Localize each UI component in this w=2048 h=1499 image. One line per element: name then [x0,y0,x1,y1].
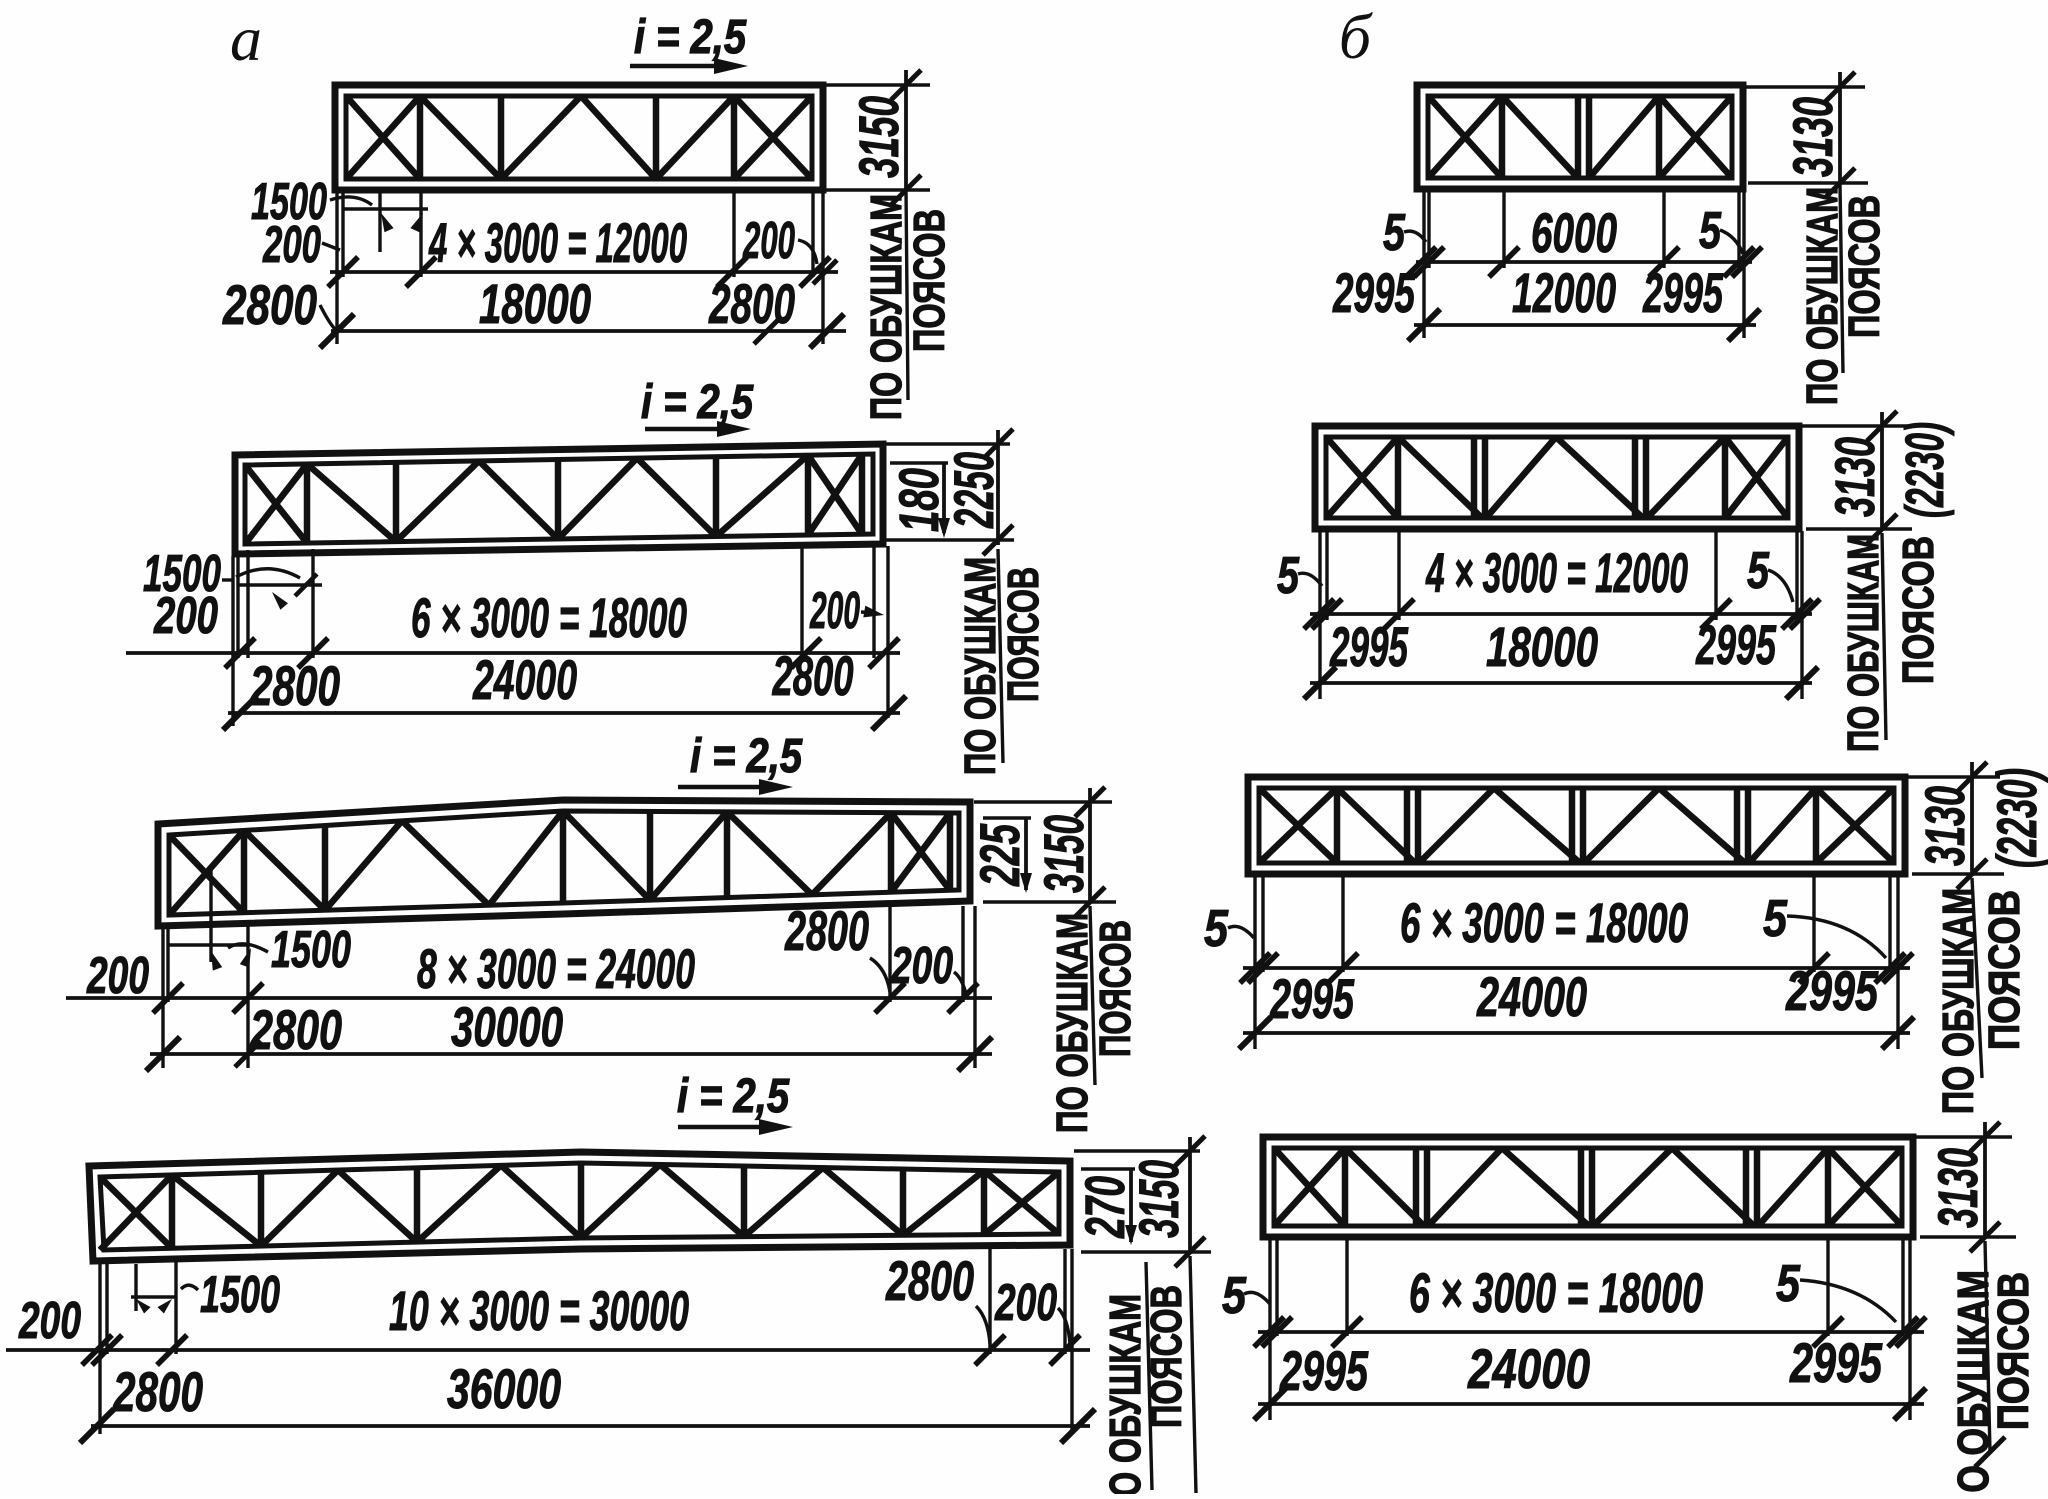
svg-text:(2230): (2230) [1985,768,2048,868]
svg-text:2800: 2800 [249,998,342,1061]
svg-text:2995: 2995 [1642,261,1723,324]
svg-text:ПОЯСОВ: ПОЯСОВ [999,567,1048,702]
svg-text:24000: 24000 [472,648,577,711]
svg-text:i = 2,5: i = 2,5 [641,376,754,429]
svg-text:3150: 3150 [847,96,910,178]
svg-text:6 × 3000 = 18000: 6 × 3000 = 18000 [1400,891,1688,954]
svg-text:ПОЯСОВ: ПОЯСОВ [1091,920,1140,1057]
svg-text:ПОЯСОВ: ПОЯСОВ [1989,1272,2038,1430]
svg-text:2250: 2250 [942,452,1005,529]
svg-text:6000: 6000 [1531,201,1617,264]
svg-text:200: 200 [890,937,953,995]
svg-text:3150: 3150 [1032,815,1095,893]
svg-text:5: 5 [1699,202,1722,260]
svg-text:4 × 3000 = 12000: 4 × 3000 = 12000 [428,211,687,274]
svg-text:24000: 24000 [1467,1337,1590,1400]
svg-text:1500: 1500 [200,1266,280,1324]
svg-text:i = 2,5: i = 2,5 [677,1070,790,1123]
svg-text:36000: 36000 [447,1357,561,1420]
svg-text:3130: 3130 [1781,97,1844,177]
svg-text:3130: 3130 [1913,786,1976,866]
svg-text:6 × 3000 = 18000: 6 × 3000 = 18000 [411,586,687,649]
svg-text:2800: 2800 [885,1249,974,1312]
svg-text:ПО ОБУШКАМ: ПО ОБУШКАМ [862,194,911,420]
svg-text:ПОЯСОВ: ПОЯСОВ [1840,195,1889,338]
svg-text:3150: 3150 [1127,1160,1190,1238]
svg-text:18000: 18000 [479,272,591,335]
svg-text:2995: 2995 [1329,615,1408,678]
svg-text:200: 200 [742,212,795,270]
svg-text:30000: 30000 [451,995,563,1058]
svg-text:2995: 2995 [1785,959,1878,1022]
svg-text:2800: 2800 [249,654,340,717]
svg-text:12000: 12000 [1512,261,1616,324]
svg-text:180: 180 [887,468,950,532]
svg-text:ПО ОБУШКАМ: ПО ОБУШКАМ [1839,534,1888,752]
svg-text:ПО ОБУШКАМ: ПО ОБУШКАМ [1048,913,1097,1133]
svg-text:8 × 3000 = 24000: 8 × 3000 = 24000 [417,937,695,1000]
svg-text:б: б [1339,1,1373,72]
svg-text:4 × 3000 = 12000: 4 × 3000 = 12000 [1425,541,1688,604]
svg-text:2995: 2995 [1695,613,1776,676]
svg-text:10 × 3000 = 30000: 10 × 3000 = 30000 [389,1279,689,1342]
svg-text:2995: 2995 [1789,1331,1882,1394]
svg-text:5: 5 [1747,542,1770,600]
svg-text:6 × 3000 = 18000: 6 × 3000 = 18000 [1409,1261,1703,1324]
svg-text:225: 225 [968,823,1031,886]
svg-text:ПО ОБУШКАМ: ПО ОБУШКАМ [956,557,1005,775]
svg-text:1500: 1500 [271,921,351,979]
svg-text:2995: 2995 [1269,967,1354,1030]
svg-text:ПОЯСОВ: ПОЯСОВ [1980,890,2029,1050]
svg-text:(2230): (2230) [1895,422,1955,518]
svg-text:ПОЯСОВ: ПОЯСОВ [905,209,954,352]
svg-text:5: 5 [1776,1255,1801,1313]
svg-text:200: 200 [262,216,321,274]
svg-text:3130: 3130 [1926,1148,1989,1228]
svg-text:200: 200 [18,1292,81,1350]
svg-text:а: а [230,3,262,74]
svg-text:200: 200 [153,587,218,645]
svg-text:5: 5 [1222,1267,1247,1325]
svg-text:5: 5 [1383,204,1406,262]
svg-text:2800: 2800 [112,1360,203,1423]
svg-text:200: 200 [994,1274,1057,1332]
svg-text:5: 5 [1277,547,1300,605]
svg-text:2800: 2800 [772,644,854,707]
svg-text:5: 5 [1204,900,1229,958]
svg-text:2995: 2995 [1332,261,1415,324]
svg-text:ПО ОБУШКАМ: ПО ОБУШКАМ [1934,888,1983,1114]
svg-text:2800: 2800 [708,272,795,335]
svg-text:2800: 2800 [222,273,317,336]
svg-text:3130: 3130 [1823,437,1886,517]
svg-text:ПОЯСОВ: ПОЯСОВ [1894,536,1943,684]
svg-text:i = 2,5: i = 2,5 [690,730,803,783]
svg-text:i = 2,5: i = 2,5 [634,11,747,64]
svg-text:24000: 24000 [1476,965,1587,1028]
svg-text:2995: 2995 [1279,1339,1368,1402]
svg-text:2800: 2800 [784,899,869,962]
svg-text:5: 5 [1763,890,1788,948]
svg-text:18000: 18000 [1486,615,1598,678]
svg-text:200: 200 [809,582,860,640]
